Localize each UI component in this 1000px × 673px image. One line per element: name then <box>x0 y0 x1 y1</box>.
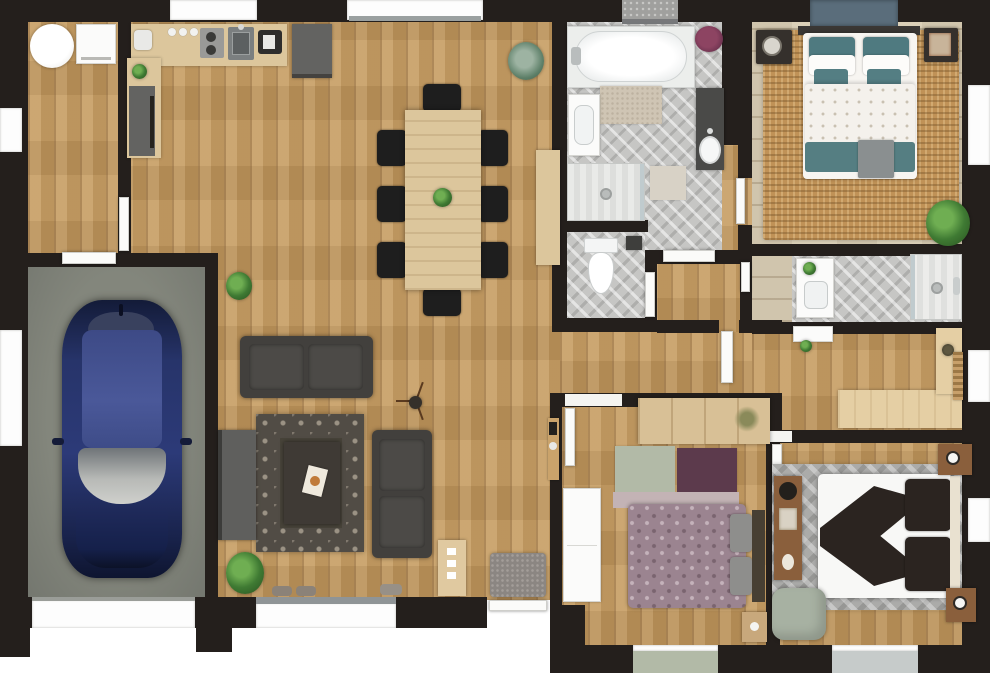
coffee-maker <box>134 30 152 50</box>
wall-bath-bed1 <box>722 22 752 145</box>
wall-sink <box>568 94 600 156</box>
entry-console <box>438 540 466 596</box>
shower-glass <box>640 164 644 220</box>
sofa-cushion <box>249 344 304 390</box>
table-centerpiece-plant <box>433 188 452 207</box>
wall-hall-a <box>657 320 719 333</box>
car-mirror-left <box>52 438 64 445</box>
garage-entry-door <box>62 252 116 264</box>
car-mirror-right <box>180 438 192 445</box>
bedroom3-window-sill <box>832 650 918 673</box>
sliding-door <box>256 603 396 628</box>
office-dresser-plant <box>800 340 812 352</box>
bed2-door-threshold <box>565 394 622 406</box>
wall-left <box>0 0 28 600</box>
entry-doormat <box>490 553 546 597</box>
floor-plan <box>0 0 1000 673</box>
floor-lamp <box>398 385 434 429</box>
bathtub-faucet <box>571 47 581 65</box>
hall-white-cabinet <box>563 488 601 602</box>
car-antenna <box>119 304 123 316</box>
walk-in-shower <box>567 163 645 221</box>
laundry-round-table <box>30 24 74 68</box>
wardrobe-plant-motif <box>734 406 760 432</box>
kitchen-window-left <box>170 0 257 20</box>
laundry-door <box>119 197 129 251</box>
bed2-nightstand <box>742 612 767 642</box>
book-decor <box>309 475 321 487</box>
bathroom-window-sill <box>622 19 678 24</box>
sink-faucet <box>238 24 244 30</box>
bed3-headboard <box>950 476 960 596</box>
vanity-faucet <box>707 128 713 134</box>
canister-1 <box>168 28 176 36</box>
ensuite-door <box>741 262 750 292</box>
garage-door-track <box>32 597 195 601</box>
cooktop <box>200 28 224 58</box>
office-door <box>721 331 733 383</box>
laundry-window <box>0 108 22 152</box>
toilet <box>584 238 618 294</box>
car-windshield <box>78 448 166 504</box>
garage-wall-plant <box>226 272 252 300</box>
sofa-horizontal <box>240 336 373 398</box>
bedroom1-plant <box>926 200 970 246</box>
bathroom-window <box>622 0 678 21</box>
bed3-nightstand-top <box>938 444 972 475</box>
washing-machine <box>76 24 116 64</box>
nightstand-book <box>929 33 951 56</box>
bedroom2-door <box>565 408 575 466</box>
radiator <box>953 352 963 400</box>
bed2-pillow-top <box>730 514 752 552</box>
dining-chair-r3 <box>478 242 508 278</box>
sofa-cushion <box>379 496 425 548</box>
living-plant <box>226 552 264 594</box>
bed3-pouf <box>772 588 826 640</box>
dining-chair-bottom <box>423 288 461 316</box>
dining-chair-l2 <box>377 186 407 222</box>
front-door <box>489 600 547 611</box>
bed2-rug-plum <box>677 448 737 494</box>
ensuite-sink <box>804 281 828 309</box>
vanity-bowl-sink <box>699 136 721 164</box>
sofa-vertical <box>372 430 432 558</box>
bed3-console <box>774 476 802 580</box>
ensuite-shower <box>910 254 962 320</box>
bed3-door-threshold <box>768 431 792 442</box>
toilet-bowl <box>588 252 614 294</box>
office-dresser <box>793 326 833 342</box>
bedroom1-right-window <box>968 85 990 165</box>
bed1-gray-towel <box>858 140 894 178</box>
ensuite-shower-drain <box>931 282 943 294</box>
ensuite-vanity <box>796 258 834 318</box>
bed3-pillow-bottom <box>905 537 951 591</box>
console-decor <box>447 548 456 555</box>
nightstand-cup <box>953 596 967 610</box>
office-right-window <box>968 350 990 402</box>
pier-left <box>0 597 30 657</box>
wall-shower-wc <box>565 220 648 232</box>
burner-1 <box>206 32 216 42</box>
sliding-door-frame <box>256 597 396 604</box>
cabinet-seam <box>567 545 597 546</box>
car-roof <box>82 330 162 448</box>
wall-garage-top <box>28 253 218 267</box>
kitchen-sink <box>228 27 254 60</box>
bed2-rug-sage <box>615 446 675 494</box>
wall-wc-bottom <box>552 318 657 332</box>
dining-chair-top <box>423 84 461 112</box>
kitchen-window-frame <box>349 16 481 21</box>
dressing-floor <box>752 250 796 322</box>
dining-chair-r2 <box>478 186 508 222</box>
bedroom2-window-sill <box>633 650 718 673</box>
slippers <box>380 584 402 595</box>
cabinet-handle <box>150 96 154 148</box>
bathroom-vanity <box>696 88 724 170</box>
washer-door-seam <box>81 57 111 60</box>
wall-bed1-corridor-a <box>738 145 752 178</box>
canister-2 <box>179 28 187 36</box>
toilet-tank <box>584 238 618 253</box>
dining-chair-l1 <box>377 130 407 166</box>
nightstand-tray <box>762 36 782 56</box>
ensuite-plant <box>803 262 816 275</box>
bedroom3-right-window <box>968 498 990 542</box>
nightstand-cup <box>946 451 960 465</box>
burner-2 <box>206 45 216 55</box>
wall-garage-right <box>205 255 218 600</box>
dining-chair-l3 <box>377 242 407 278</box>
bedroom1-door <box>736 178 745 224</box>
car <box>62 300 182 578</box>
bed3-pillow-top <box>905 479 951 531</box>
key-shelf-frame <box>549 422 557 435</box>
console-bowl <box>779 482 797 500</box>
bed1-nightstand-left <box>756 30 792 64</box>
bed2-duvet <box>628 504 746 608</box>
console-vase <box>782 554 794 570</box>
bathroom-door <box>663 250 715 262</box>
bathtub <box>575 31 687 82</box>
console-books <box>779 508 797 530</box>
sideboard <box>536 150 560 265</box>
sink-bowl <box>574 105 594 145</box>
key-shelf <box>548 418 559 480</box>
bed2-headboard <box>752 510 765 602</box>
slippers <box>272 586 292 596</box>
pier-mid <box>196 597 232 652</box>
kitchen-plant <box>132 64 147 79</box>
sofa-cushion <box>379 439 425 491</box>
towel-basket <box>695 26 723 52</box>
garage-side-window <box>0 330 22 446</box>
countertop-oven <box>258 30 282 54</box>
bath-mat <box>600 86 662 124</box>
lamp-shade <box>409 396 422 409</box>
nightstand-decor <box>750 622 759 631</box>
shower-mat <box>650 166 686 200</box>
sofa-cushion <box>308 344 363 390</box>
bed2-pillow-bottom <box>730 557 752 595</box>
wall-office-top <box>752 322 962 334</box>
bed1-nightstand-right <box>924 28 958 62</box>
bedroom1-window-panel <box>810 0 898 26</box>
canister-3 <box>190 28 198 36</box>
dining-plant <box>508 42 544 80</box>
wc-door <box>645 272 655 317</box>
ensuite-shower-glass <box>911 255 915 319</box>
bedroom3-window <box>832 645 918 651</box>
garage-door <box>32 600 195 628</box>
shower-drain <box>600 188 612 200</box>
bedroom2-window <box>633 645 718 651</box>
bed3-nightstand-bottom <box>946 588 976 622</box>
office-desk-horizontal <box>838 390 962 428</box>
car-hood <box>76 506 168 568</box>
wc-shelf-box <box>626 236 642 250</box>
tv-cabinet <box>218 430 256 540</box>
fridge <box>292 24 332 78</box>
bed1-duvet <box>805 84 915 148</box>
oven-window <box>263 35 275 49</box>
bed2-wardrobe <box>638 398 770 444</box>
dining-chair-r1 <box>478 130 508 166</box>
key-shelf-mirror <box>549 442 557 450</box>
shower-fixture <box>953 277 960 295</box>
sink-basin <box>232 32 250 55</box>
